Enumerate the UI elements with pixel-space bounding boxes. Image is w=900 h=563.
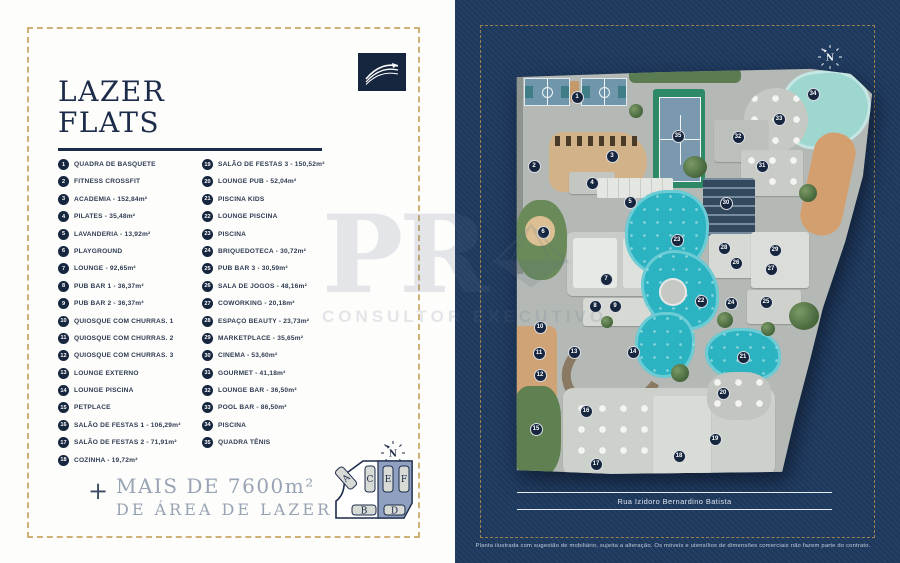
map-marker-22: 22 <box>695 295 708 308</box>
marketplace-coworking-roof <box>751 232 809 288</box>
map-marker-29: 29 <box>769 244 782 257</box>
legend-item-number: 14 <box>58 385 69 396</box>
legend-item: 23PISCINA <box>202 229 388 240</box>
brochure-left-panel: LAZER FLATS 1QUADRA DE BASQUETE2FITNESS … <box>0 0 455 563</box>
street-label: Rua Izidoro Bernardino Batista <box>517 492 832 510</box>
legend-item-number: 19 <box>202 159 213 170</box>
map-marker-30: 30 <box>720 197 733 210</box>
map-marker-9: 9 <box>609 300 622 313</box>
map-marker-4: 4 <box>586 177 599 190</box>
legend-item-label: LAVANDERIA - 13,92m² <box>74 231 150 238</box>
legend-item: 14LOUNGE PISCINA <box>58 385 196 396</box>
map-marker-19: 19 <box>709 433 722 446</box>
map-marker-6: 6 <box>537 226 550 239</box>
map-marker-2: 2 <box>528 160 541 173</box>
key-plan-building-d: D <box>391 507 398 517</box>
legend-item-label: QUIOSQUE COM CHURRAS. 1 <box>74 318 174 325</box>
legend-item-label: PETPLACE <box>74 404 111 411</box>
legend-item: 1QUADRA DE BASQUETE <box>58 159 196 170</box>
map-marker-32: 32 <box>732 131 745 144</box>
legend-item-number: 9 <box>58 298 69 309</box>
map-marker-34: 34 <box>807 88 820 101</box>
legend-item: 7LOUNGE - 92,65m² <box>58 263 196 274</box>
map-marker-17: 17 <box>590 458 603 471</box>
pool-island <box>659 278 687 306</box>
legend-item-label: GOURMET - 41,18m² <box>218 370 286 377</box>
legend-item: 19SALÃO DE FESTAS 3 - 150,52m² <box>202 159 388 170</box>
legend-item: 13LOUNGE EXTERNO <box>58 368 196 379</box>
legend-item-label: MARKETPLACE - 35,65m² <box>218 335 303 342</box>
map-marker-3: 3 <box>606 150 619 163</box>
legend-item-label: LOUNGE - 92,65m² <box>74 265 136 272</box>
legend-item-label: FITNESS CROSSFIT <box>74 178 140 185</box>
key-plan-building-c: C <box>367 475 374 485</box>
legend-item-label: LOUNGE BAR - 36,50m² <box>218 387 297 394</box>
legend-item-number: 12 <box>58 350 69 361</box>
legend-item: 30CINEMA - 53,60m² <box>202 350 388 361</box>
legend-item-label: PISCINA <box>218 231 246 238</box>
legend-item-label: PUB BAR 3 - 30,59m² <box>218 265 288 272</box>
legend-item-label: ACADEMIA - 152,84m² <box>74 196 147 203</box>
legend-item-label: PISCINA <box>218 422 246 429</box>
vegetation <box>629 104 643 118</box>
vegetation <box>761 322 775 336</box>
map-marker-8: 8 <box>589 300 602 313</box>
legend-item-label: CINEMA - 53,60m² <box>218 352 277 359</box>
legend-item-number: 15 <box>58 402 69 413</box>
map-marker-7: 7 <box>600 273 613 286</box>
leisure-area-line-2: DE ÁREA DE LAZER <box>116 500 332 519</box>
legend-item-label: QUIOSQUE COM CHURRAS. 3 <box>74 352 174 359</box>
building-key-plan: A C E F B D <box>324 458 418 534</box>
disclaimer-text: Planta ilustrada com sugestão de mobiliá… <box>473 543 873 549</box>
map-marker-16: 16 <box>580 405 593 418</box>
map-marker-1: 1 <box>571 91 584 104</box>
legend-item-label: QUADRA TÊNIS <box>218 439 270 446</box>
legend-item-label: PUB BAR 1 - 36,37m² <box>74 283 144 290</box>
legend-item-number: 21 <box>202 194 213 205</box>
legend-item: 22LOUNGE PISCINA <box>202 211 388 222</box>
key-plan-building-e: E <box>385 475 392 485</box>
legend-item: 27COWORKING - 20,18m² <box>202 298 388 309</box>
legend-item-number: 25 <box>202 263 213 274</box>
legend-item-label: LOUNGE PISCINA <box>218 213 278 220</box>
legend-item: 6PLAYGROUND <box>58 246 196 257</box>
legend-item-number: 10 <box>58 316 69 327</box>
legend-item-label: BRIQUEDOTECA - 30,72m² <box>218 248 306 255</box>
basketball-court <box>581 78 627 106</box>
legend-item-label: QUADRA DE BASQUETE <box>74 161 156 168</box>
legend-item: 17SALÃO DE FESTAS 2 - 71,91m² <box>58 437 196 448</box>
title-divider <box>58 148 322 151</box>
map-marker-28: 28 <box>718 242 731 255</box>
legend-item: 32LOUNGE BAR - 36,50m² <box>202 385 388 396</box>
legend-item: 28ESPAÇO BEAUTY - 23,73m² <box>202 316 388 327</box>
legend-item: 24BRIQUEDOTECA - 30,72m² <box>202 246 388 257</box>
legend-item-label: PISCINA KIDS <box>218 196 265 203</box>
legend-item-number: 35 <box>202 437 213 448</box>
map-marker-26: 26 <box>730 257 743 270</box>
legend-column-1: 1QUADRA DE BASQUETE2FITNESS CROSSFIT3ACA… <box>58 159 196 472</box>
legend-item: 8PUB BAR 1 - 36,37m² <box>58 281 196 292</box>
legend-item-label: ESPAÇO BEAUTY - 23,73m² <box>218 318 309 325</box>
legend-item-number: 22 <box>202 211 213 222</box>
legend-item-number: 26 <box>202 281 213 292</box>
legend-item-number: 27 <box>202 298 213 309</box>
vegetation <box>717 312 733 328</box>
legend-item-number: 7 <box>58 263 69 274</box>
legend-item-number: 13 <box>58 368 69 379</box>
legend-item-number: 1 <box>58 159 69 170</box>
compass-letter: N <box>826 54 834 64</box>
developer-logo <box>358 53 406 91</box>
map-marker-10: 10 <box>534 321 547 334</box>
title-line-1: LAZER <box>58 76 165 107</box>
legend-item-number: 30 <box>202 350 213 361</box>
legend-item: 18COZINHA - 19,72m² <box>58 455 196 466</box>
legend-item-label: SALÃO DE FESTAS 1 - 106,29m² <box>74 422 181 429</box>
legend-item: 35QUADRA TÊNIS <box>202 437 388 448</box>
vegetation <box>799 184 817 202</box>
legend-item-number: 17 <box>58 437 69 448</box>
legend-item-number: 34 <box>202 420 213 431</box>
legend-item-number: 5 <box>58 229 69 240</box>
kitchen-block <box>653 396 711 476</box>
leisure-area-line-1: MAIS DE 7600m² <box>116 474 332 498</box>
site-map: 1234567891011121314151617181920212223242… <box>511 66 875 478</box>
title-line-2: FLATS <box>58 107 165 138</box>
legend-item-number: 16 <box>58 420 69 431</box>
legend-item-number: 20 <box>202 176 213 187</box>
vegetation <box>671 364 689 382</box>
map-marker-35: 35 <box>672 130 685 143</box>
vegetation <box>683 156 707 178</box>
map-marker-25: 25 <box>760 296 773 309</box>
legend-item-label: COZINHA - 19,72m² <box>74 457 138 464</box>
legend-item-label: PLAYGROUND <box>74 248 122 255</box>
legend-item-number: 3 <box>58 194 69 205</box>
map-marker-15: 15 <box>530 423 543 436</box>
legend-item: 2FITNESS CROSSFIT <box>58 176 196 187</box>
legend-item: 4PILATES - 35,48m² <box>58 211 196 222</box>
map-marker-18: 18 <box>673 450 686 463</box>
legend-item-label: PILATES - 35,48m² <box>74 213 135 220</box>
legend-item-number: 2 <box>58 176 69 187</box>
map-marker-14: 14 <box>627 346 640 359</box>
legend-item: 16SALÃO DE FESTAS 1 - 106,29m² <box>58 420 196 431</box>
legend-item-number: 32 <box>202 385 213 396</box>
map-marker-20: 20 <box>717 387 730 400</box>
legend-item-number: 4 <box>58 211 69 222</box>
legend-item-number: 28 <box>202 316 213 327</box>
legend-item-label: SALÃO DE FESTAS 2 - 71,91m² <box>74 439 177 446</box>
legend-item-label: LOUNGE PISCINA <box>74 387 134 394</box>
map-marker-31: 31 <box>756 160 769 173</box>
legend-item-number: 33 <box>202 402 213 413</box>
legend-item: 29MARKETPLACE - 35,65m² <box>202 333 388 344</box>
legend-item: 11QUIOSQUE COM CHURRAS. 2 <box>58 333 196 344</box>
map-marker-23: 23 <box>671 234 684 247</box>
plus-sign: + <box>88 477 108 505</box>
key-plan-building-b: B <box>361 507 368 517</box>
map-marker-27: 27 <box>765 263 778 276</box>
legend-item-label: LOUNGE EXTERNO <box>74 370 139 377</box>
legend-item-number: 23 <box>202 229 213 240</box>
legend-item: 12QUIOSQUE COM CHURRAS. 3 <box>58 350 196 361</box>
swoosh-icon <box>358 53 406 91</box>
gym-equipment-row <box>555 136 641 146</box>
legend-item-number: 24 <box>202 246 213 257</box>
legend-column-2: 19SALÃO DE FESTAS 3 - 150,52m²20LOUNGE P… <box>202 159 388 455</box>
legend-item-label: QUIOSQUE COM CHURRAS. 2 <box>74 335 174 342</box>
legend-item: 33POOL BAR - 86,50m² <box>202 402 388 413</box>
key-plan-building-f: F <box>401 475 407 485</box>
map-marker-21: 21 <box>737 351 750 364</box>
map-hedge <box>629 68 741 83</box>
legend-item-label: LOUNGE PUB - 52,04m² <box>218 178 296 185</box>
legend-item: 25PUB BAR 3 - 30,59m² <box>202 263 388 274</box>
map-marker-13: 13 <box>568 346 581 359</box>
site-plan-panel: N <box>455 0 900 563</box>
map-marker-5: 5 <box>624 196 637 209</box>
legend-item: 15PETPLACE <box>58 402 196 413</box>
vegetation <box>789 302 819 330</box>
site-map-wrapper: 1234567891011121314151617181920212223242… <box>511 66 875 478</box>
legend-item: 26SALA DE JOGOS - 48,16m² <box>202 281 388 292</box>
map-marker-24: 24 <box>725 297 738 310</box>
legend-item-number: 11 <box>58 333 69 344</box>
legend-item: 34PISCINA <box>202 420 388 431</box>
legend-item-number: 6 <box>58 246 69 257</box>
legend-item-number: 8 <box>58 281 69 292</box>
vegetation <box>601 316 613 328</box>
basketball-court <box>524 78 570 106</box>
legend-item-label: POOL BAR - 86,50m² <box>218 404 287 411</box>
legend-item-number: 31 <box>202 368 213 379</box>
map-marker-11: 11 <box>533 347 546 360</box>
legend-item-label: SALA DE JOGOS - 48,16m² <box>218 283 307 290</box>
legend-item-number: 29 <box>202 333 213 344</box>
legend-item: 10QUIOSQUE COM CHURRAS. 1 <box>58 316 196 327</box>
leisure-area-callout: MAIS DE 7600m² DE ÁREA DE LAZER <box>116 474 332 519</box>
legend-item: 5LAVANDERIA - 13,92m² <box>58 229 196 240</box>
map-marker-12: 12 <box>534 369 547 382</box>
legend-item-label: PUB BAR 2 - 36,37m² <box>74 300 144 307</box>
legend-item: 3ACADEMIA - 152,84m² <box>58 194 196 205</box>
legend-item-label: COWORKING - 20,18m² <box>218 300 295 307</box>
legend-item: 21PISCINA KIDS <box>202 194 388 205</box>
map-marker-33: 33 <box>773 113 786 126</box>
legend-item: 20LOUNGE PUB - 52,04m² <box>202 176 388 187</box>
legend-item-number: 18 <box>58 455 69 466</box>
page-title: LAZER FLATS <box>58 76 165 138</box>
legend-item: 31GOURMET - 41,18m² <box>202 368 388 379</box>
legend-item: 9PUB BAR 2 - 36,37m² <box>58 298 196 309</box>
legend-item-label: SALÃO DE FESTAS 3 - 150,52m² <box>218 161 325 168</box>
